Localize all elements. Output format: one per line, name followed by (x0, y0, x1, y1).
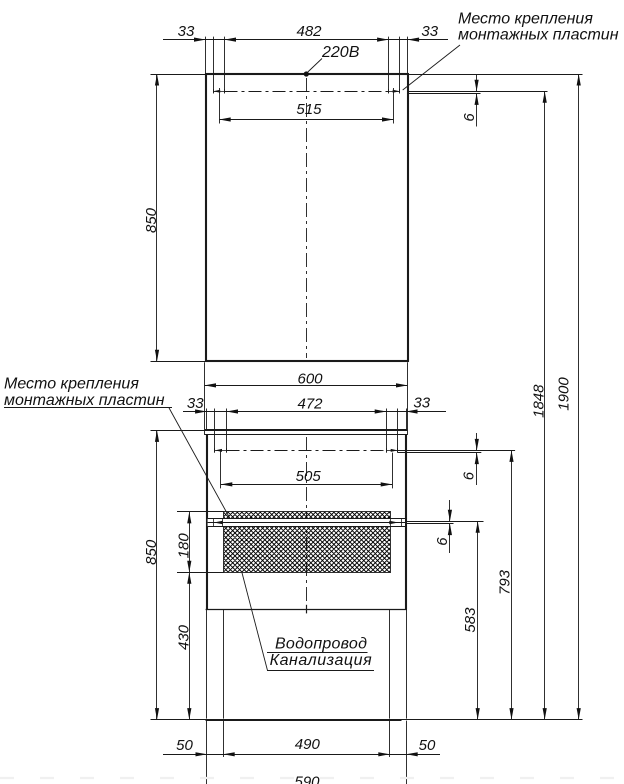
svg-text:180: 180 (175, 533, 192, 559)
svg-text:430: 430 (175, 624, 192, 650)
svg-text:33: 33 (413, 394, 430, 411)
svg-text:583: 583 (462, 607, 479, 633)
svg-text:Канализация: Канализация (270, 652, 373, 669)
svg-text:515: 515 (296, 101, 322, 118)
svg-text:33: 33 (187, 395, 204, 412)
svg-text:482: 482 (296, 23, 322, 40)
svg-text:33: 33 (421, 23, 438, 40)
svg-text:793: 793 (496, 569, 513, 595)
svg-text:50: 50 (419, 737, 436, 754)
svg-text:850: 850 (143, 207, 160, 233)
svg-text:6: 6 (461, 471, 478, 480)
svg-text:600: 600 (297, 370, 323, 387)
svg-text:Место крепления: Место крепления (4, 376, 139, 393)
svg-text:490: 490 (295, 736, 321, 753)
svg-text:472: 472 (297, 396, 323, 413)
svg-text:590: 590 (294, 773, 320, 784)
svg-text:монтажных пластин: монтажных пластин (4, 392, 165, 409)
svg-text:Место крепления: Место крепления (458, 10, 593, 27)
svg-text:1848: 1848 (530, 384, 547, 418)
svg-text:850: 850 (143, 539, 160, 565)
svg-text:монтажных пластин: монтажных пластин (458, 27, 619, 44)
svg-text:220В: 220В (321, 44, 360, 61)
svg-text:1900: 1900 (556, 377, 573, 411)
svg-text:505: 505 (296, 468, 322, 485)
svg-text:50: 50 (176, 737, 193, 754)
svg-text:Водопровод: Водопровод (275, 636, 367, 653)
svg-text:6: 6 (434, 537, 451, 546)
svg-text:33: 33 (178, 23, 195, 40)
svg-text:6: 6 (461, 113, 478, 122)
